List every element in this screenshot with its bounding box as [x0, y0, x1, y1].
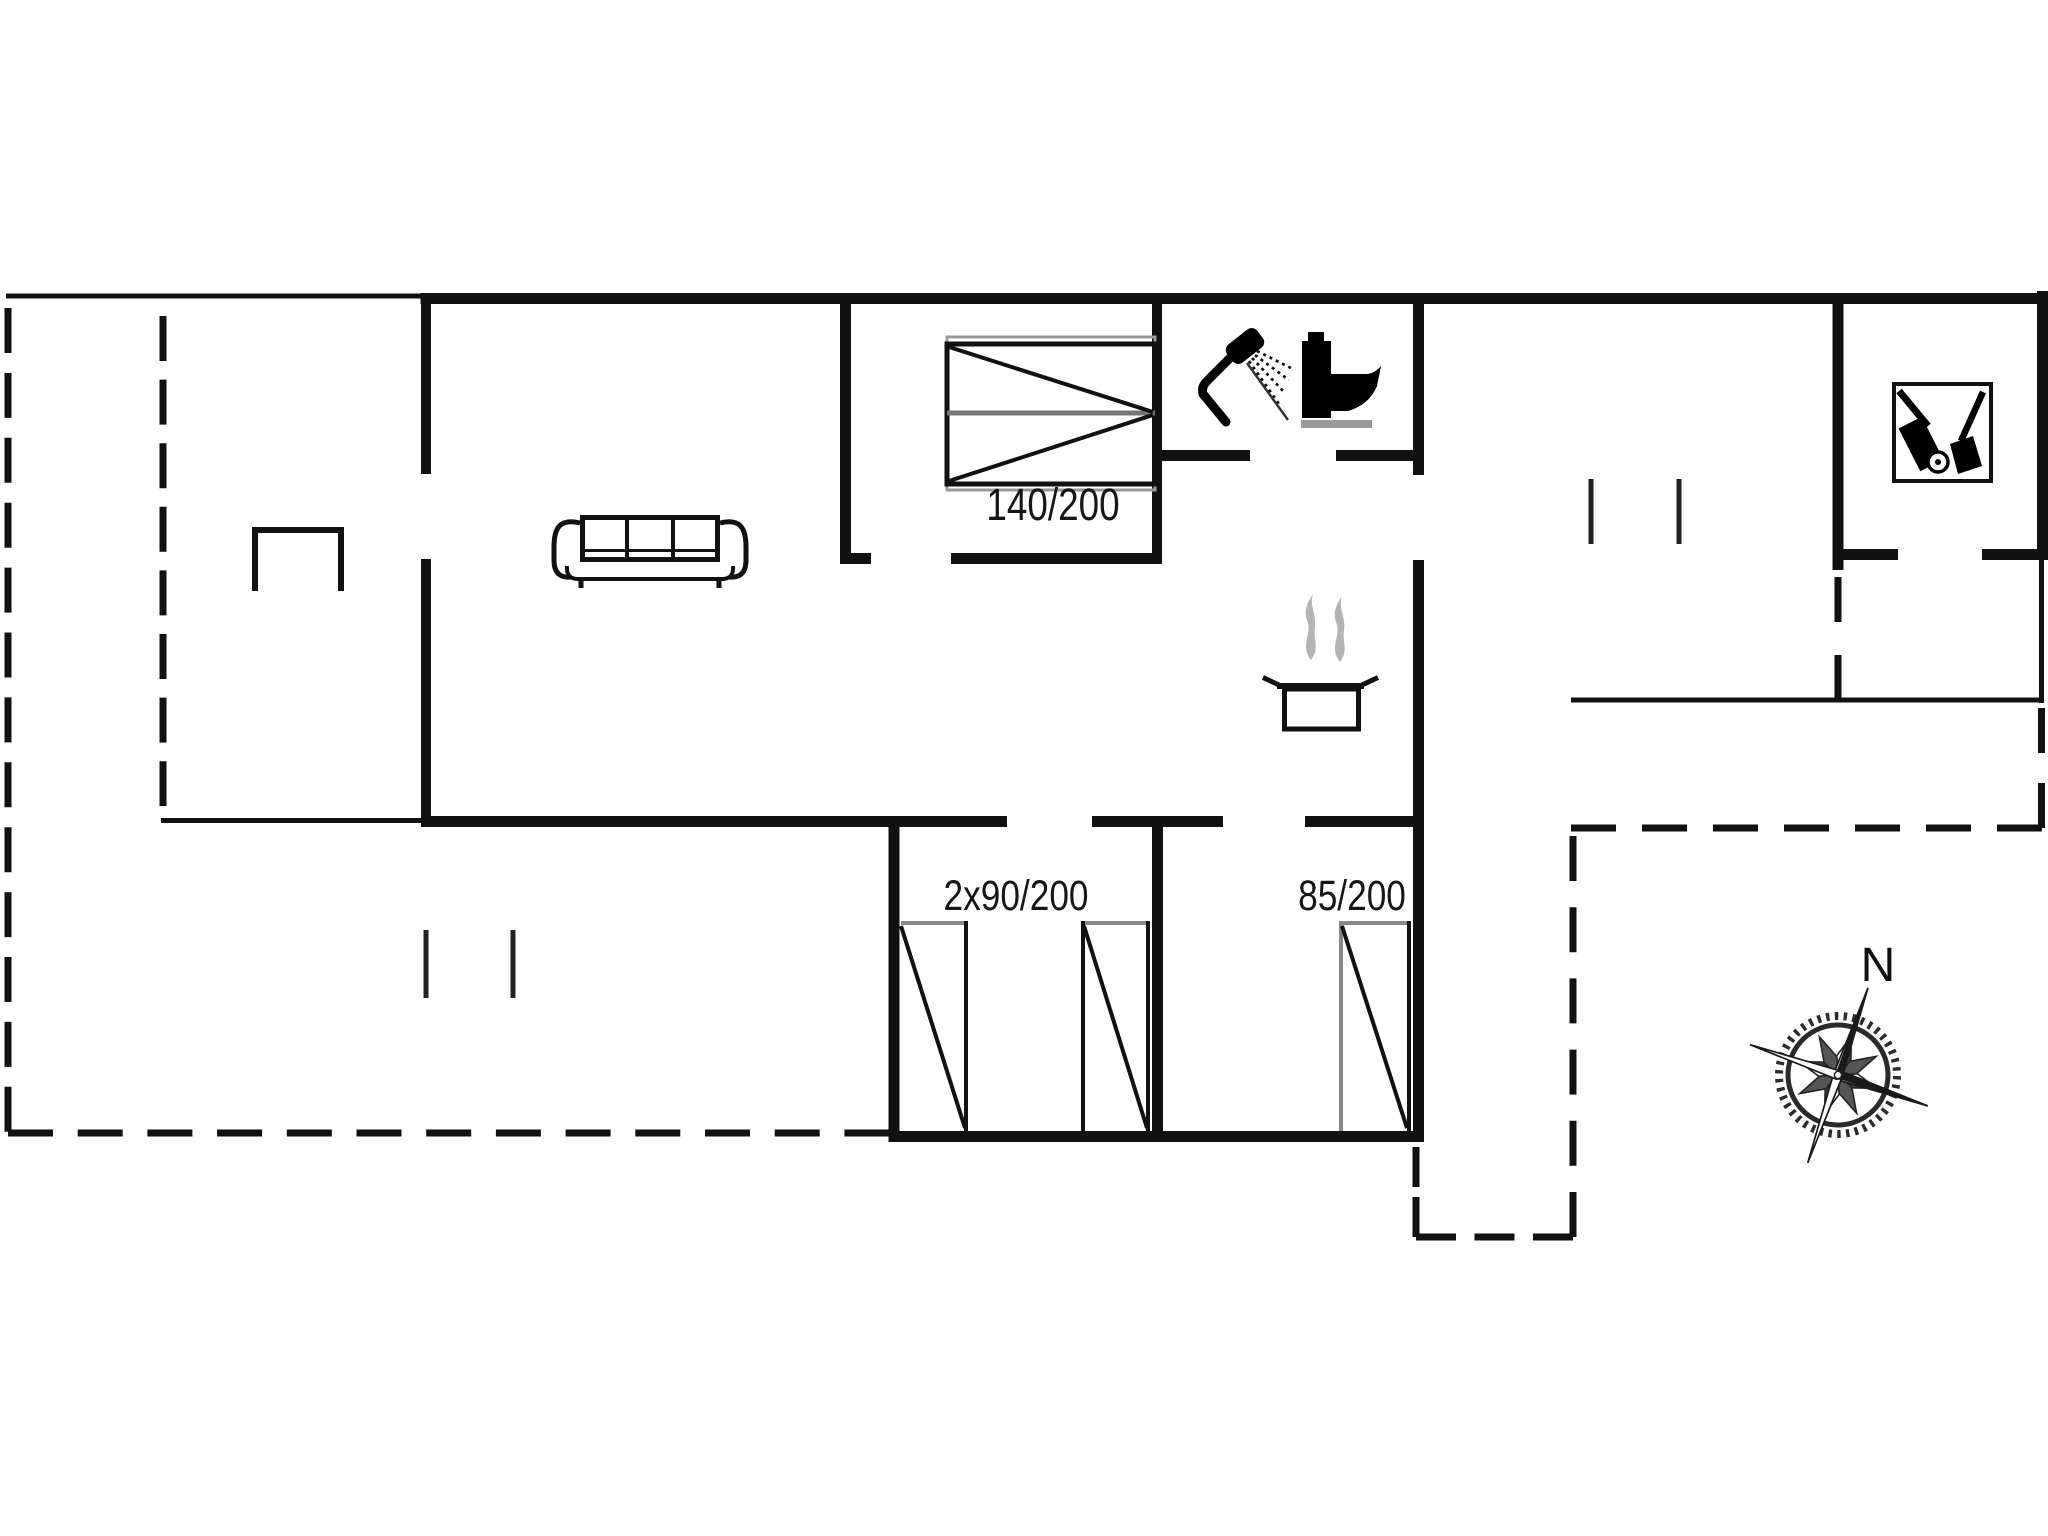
- svg-text:N: N: [1861, 939, 1896, 992]
- svg-text:140/200: 140/200: [986, 480, 1119, 530]
- svg-text:2x90/200: 2x90/200: [943, 872, 1088, 920]
- svg-text:85/200: 85/200: [1298, 872, 1406, 920]
